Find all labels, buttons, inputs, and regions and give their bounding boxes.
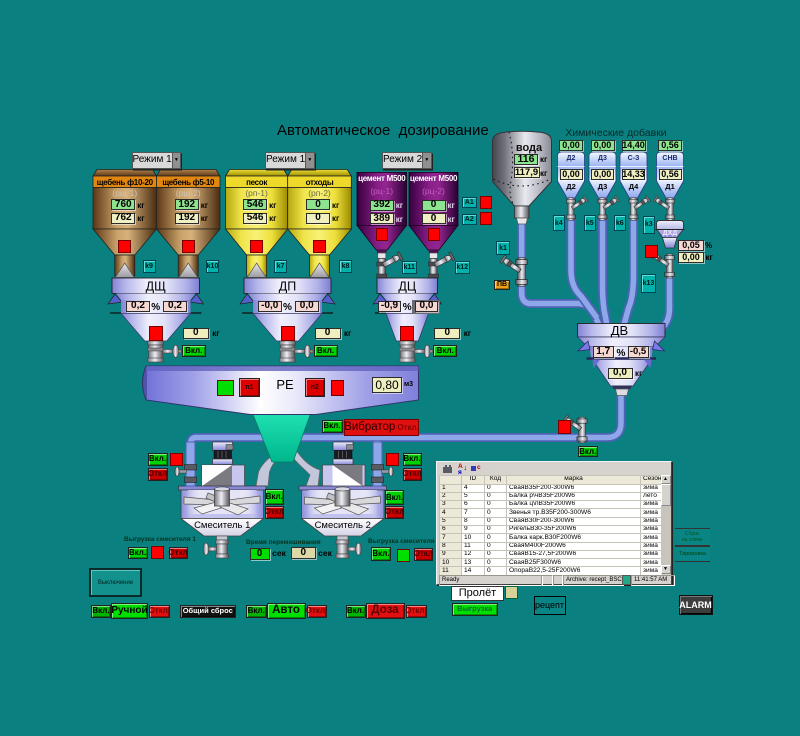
svg-text:ДЦ: ДЦ (398, 280, 416, 294)
svg-text:ДХД: ДХД (663, 230, 678, 237)
svg-text:ДЩ: ДЩ (146, 280, 166, 294)
svg-text:ДП: ДП (279, 280, 296, 294)
svg-text:ДВ: ДВ (611, 323, 628, 338)
